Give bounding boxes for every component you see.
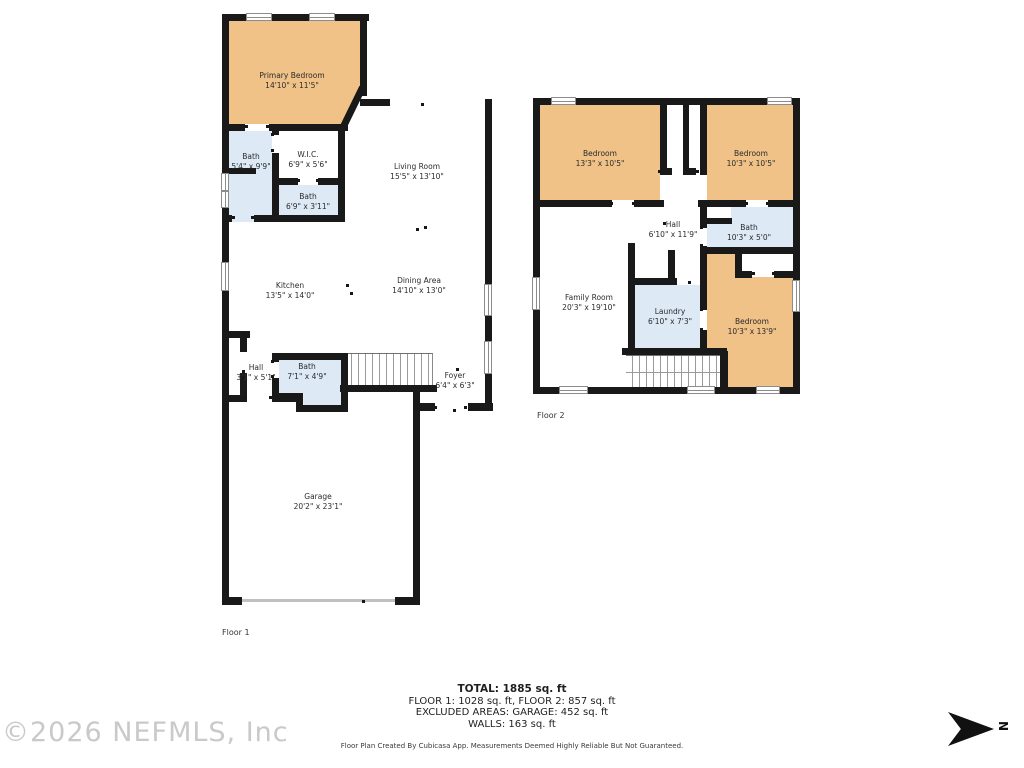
marker-dot xyxy=(700,244,703,247)
room-label: Foyer6'4" x 6'3" xyxy=(435,371,474,391)
room-dimensions: 10'3" x 10'5" xyxy=(727,159,776,169)
marker-dot xyxy=(242,332,245,335)
marker-dot xyxy=(362,600,365,603)
room-label: Garage20'2" x 23'1" xyxy=(294,492,343,512)
watermark-text: ©2026 NEFMLS, Inc xyxy=(2,717,289,748)
room-name: Kitchen xyxy=(266,281,315,291)
wall xyxy=(272,178,298,185)
room-label: Bedroom10'3" x 13'9" xyxy=(728,317,777,337)
excluded-areas-text: EXCLUDED AREAS: GARAGE: 452 sq. ft xyxy=(408,707,615,719)
marker-dot xyxy=(700,328,703,331)
wall xyxy=(222,215,232,222)
room-name: Dining Area xyxy=(392,276,446,286)
room-name: Bath xyxy=(287,362,326,372)
room-dimensions: 6'9" x 5'6" xyxy=(288,160,327,170)
marker-dot xyxy=(772,272,775,275)
marker-dot xyxy=(297,179,300,182)
room-name: Bath xyxy=(286,192,330,202)
room-dimensions: 20'3" x 19'10" xyxy=(562,303,616,313)
marker-dot xyxy=(421,103,424,106)
room-name: Bedroom xyxy=(576,149,625,159)
room-name: Foyer xyxy=(435,371,474,381)
wall xyxy=(296,405,348,412)
marker-dot xyxy=(271,133,274,136)
wall xyxy=(700,246,707,310)
wall xyxy=(341,353,348,408)
window-pane-line xyxy=(488,285,489,315)
marker-dot xyxy=(434,406,437,409)
room-name: Bedroom xyxy=(727,149,776,159)
marker-dot xyxy=(424,226,427,229)
stair-landing-line xyxy=(626,372,720,373)
window xyxy=(221,262,229,291)
marker-dot xyxy=(485,182,488,185)
room-name: Garage xyxy=(294,492,343,502)
wall xyxy=(360,99,390,106)
marker-dot xyxy=(245,125,248,128)
marker-dot xyxy=(271,149,274,152)
room-name: Laundry xyxy=(648,307,692,317)
wall xyxy=(272,353,348,360)
window xyxy=(687,386,715,394)
room-name: Bedroom xyxy=(728,317,777,327)
wall xyxy=(707,200,746,207)
room-label: Family Room20'3" x 19'10" xyxy=(562,293,616,313)
window xyxy=(559,386,588,394)
window-pane-line xyxy=(488,342,489,373)
room-label: Bedroom13'3" x 10'5" xyxy=(576,149,625,169)
room-label: Hall3'1" x 5'1" xyxy=(236,363,275,383)
window xyxy=(309,13,335,21)
wall xyxy=(340,385,437,392)
room-dimensions: 13'5" x 14'0" xyxy=(266,291,315,301)
window xyxy=(767,97,792,105)
wall xyxy=(684,168,696,175)
wall xyxy=(413,390,420,605)
marker-dot xyxy=(316,179,319,182)
room-label: Laundry6'10" x 7'3" xyxy=(648,307,692,327)
marker-dot xyxy=(696,170,699,173)
room-name: W.I.C. xyxy=(288,150,327,160)
floor-areas-text: FLOOR 1: 1028 sq. ft, FLOOR 2: 857 sq. f… xyxy=(408,696,615,708)
window xyxy=(532,277,540,310)
wall xyxy=(683,98,689,175)
wall xyxy=(735,271,752,278)
room-label: Hall6'10" x 11'9" xyxy=(649,220,698,240)
room-dimensions: 6'10" x 7'3" xyxy=(648,317,692,327)
window xyxy=(484,284,492,316)
wall xyxy=(360,14,367,96)
marker-dot xyxy=(700,308,703,311)
marker-dot xyxy=(232,216,235,219)
window-pane-line xyxy=(536,278,537,309)
window-pane-line xyxy=(225,174,226,190)
room-label: Kitchen13'5" x 14'0" xyxy=(266,281,315,301)
total-area-text: TOTAL: 1885 sq. ft xyxy=(408,684,615,696)
wall xyxy=(468,403,493,411)
room-dimensions: 15'5" x 13'10" xyxy=(390,172,444,182)
window-pane-line xyxy=(552,101,575,102)
wall xyxy=(318,178,345,185)
marker-dot xyxy=(700,226,703,229)
window-pane-line xyxy=(225,263,226,290)
wall xyxy=(254,215,345,222)
wall xyxy=(222,14,369,21)
wall xyxy=(700,98,707,175)
room-name: Hall xyxy=(236,363,275,373)
room-dimensions: 14'10" x 11'5" xyxy=(259,81,324,91)
room-label: Bedroom10'3" x 10'5" xyxy=(727,149,776,169)
wall xyxy=(533,200,612,207)
marker-dot xyxy=(266,125,269,128)
wall xyxy=(272,395,300,402)
room-name: Bath xyxy=(727,223,771,233)
marker-dot xyxy=(244,396,247,399)
room-label: Bath7'1" x 4'9" xyxy=(287,362,326,382)
wall xyxy=(222,14,229,605)
area-summary: TOTAL: 1885 sq. ft FLOOR 1: 1028 sq. ft,… xyxy=(408,684,615,730)
compass: N xyxy=(946,706,1016,756)
staircase xyxy=(626,355,720,387)
room-dimensions: 14'10" x 13'0" xyxy=(392,286,446,296)
marker-dot xyxy=(766,202,769,205)
floor-1-tag: Floor 1 xyxy=(222,628,250,637)
room-dimensions: 6'4" x 6'3" xyxy=(435,381,474,391)
window xyxy=(756,386,780,394)
room-label: Living Room15'5" x 13'10" xyxy=(390,162,444,182)
marker-dot xyxy=(464,406,467,409)
room-dimensions: 20'2" x 23'1" xyxy=(294,502,343,512)
window xyxy=(551,97,576,105)
room-name: Bath xyxy=(231,152,270,162)
wall xyxy=(668,250,675,285)
staircase xyxy=(345,353,433,385)
marker-dot xyxy=(658,170,661,173)
marker-dot xyxy=(346,284,349,287)
wall xyxy=(720,351,728,391)
window-pane-line xyxy=(796,281,797,311)
window xyxy=(246,13,272,21)
wall xyxy=(269,124,348,131)
wall xyxy=(628,243,635,353)
room-dimensions: 5'4" x 9'9" xyxy=(231,162,270,172)
marker-dot xyxy=(453,409,456,412)
window xyxy=(221,173,229,191)
wall xyxy=(533,98,540,394)
room-name: Living Room xyxy=(390,162,444,172)
window-pane-line xyxy=(247,17,271,18)
wall xyxy=(338,124,345,222)
marker-dot xyxy=(688,281,691,284)
room-dimensions: 10'3" x 13'9" xyxy=(728,327,777,337)
window-pane-line xyxy=(757,390,779,391)
window xyxy=(221,191,229,208)
marker-dot xyxy=(632,202,635,205)
room-name: Primary Bedroom xyxy=(259,71,324,81)
wall xyxy=(768,200,793,207)
floorplan-canvas: Primary Bedroom14'10" x 11'5"Bath5'4" x … xyxy=(0,0,1024,768)
garage-door-line xyxy=(242,599,395,602)
window xyxy=(484,341,492,374)
wall xyxy=(222,395,243,402)
room-dimensions: 6'9" x 3'11" xyxy=(286,202,330,212)
wall xyxy=(222,597,242,605)
room-dimensions: 7'1" x 4'9" xyxy=(287,372,326,382)
wall xyxy=(700,207,707,228)
disclaimer-text: Floor Plan Created By Cubicasa App. Meas… xyxy=(341,742,684,750)
room-fill xyxy=(229,131,272,222)
room-label: Bath5'4" x 9'9" xyxy=(231,152,270,172)
window-pane-line xyxy=(310,17,334,18)
room-label: Primary Bedroom14'10" x 11'5" xyxy=(259,71,324,91)
window-pane-line xyxy=(225,192,226,207)
room-name: Hall xyxy=(649,220,698,230)
marker-dot xyxy=(752,272,755,275)
walls-area-text: WALLS: 163 sq. ft xyxy=(408,719,615,731)
wall xyxy=(622,348,727,355)
marker-dot xyxy=(610,202,613,205)
wall xyxy=(793,98,800,394)
marker-dot xyxy=(416,228,419,231)
marker-dot xyxy=(251,216,254,219)
wall xyxy=(660,98,667,175)
window-pane-line xyxy=(560,390,587,391)
wall xyxy=(660,168,672,175)
room-label: Bath10'3" x 5'0" xyxy=(727,223,771,243)
room-label: Bath6'9" x 3'11" xyxy=(286,192,330,212)
wall xyxy=(774,271,793,278)
room-dimensions: 3'1" x 5'1" xyxy=(236,373,275,383)
window-pane-line xyxy=(688,390,714,391)
room-name: Family Room xyxy=(562,293,616,303)
wall xyxy=(634,200,664,207)
room-label: Dining Area14'10" x 13'0" xyxy=(392,276,446,296)
marker-dot xyxy=(269,396,272,399)
room-dimensions: 10'3" x 5'0" xyxy=(727,233,771,243)
window-pane-line xyxy=(768,101,791,102)
room-dimensions: 6'10" x 11'9" xyxy=(649,230,698,240)
wall xyxy=(735,247,793,254)
marker-dot xyxy=(745,202,748,205)
wall xyxy=(272,153,279,222)
room-dimensions: 13'3" x 10'5" xyxy=(576,159,625,169)
marker-dot xyxy=(350,292,353,295)
north-label: N xyxy=(996,721,1010,731)
north-arrow-icon xyxy=(948,712,994,746)
wall xyxy=(222,124,245,131)
window xyxy=(792,280,800,312)
floor-2-tag: Floor 2 xyxy=(537,411,565,420)
wall xyxy=(395,597,420,605)
room-label: W.I.C.6'9" x 5'6" xyxy=(288,150,327,170)
